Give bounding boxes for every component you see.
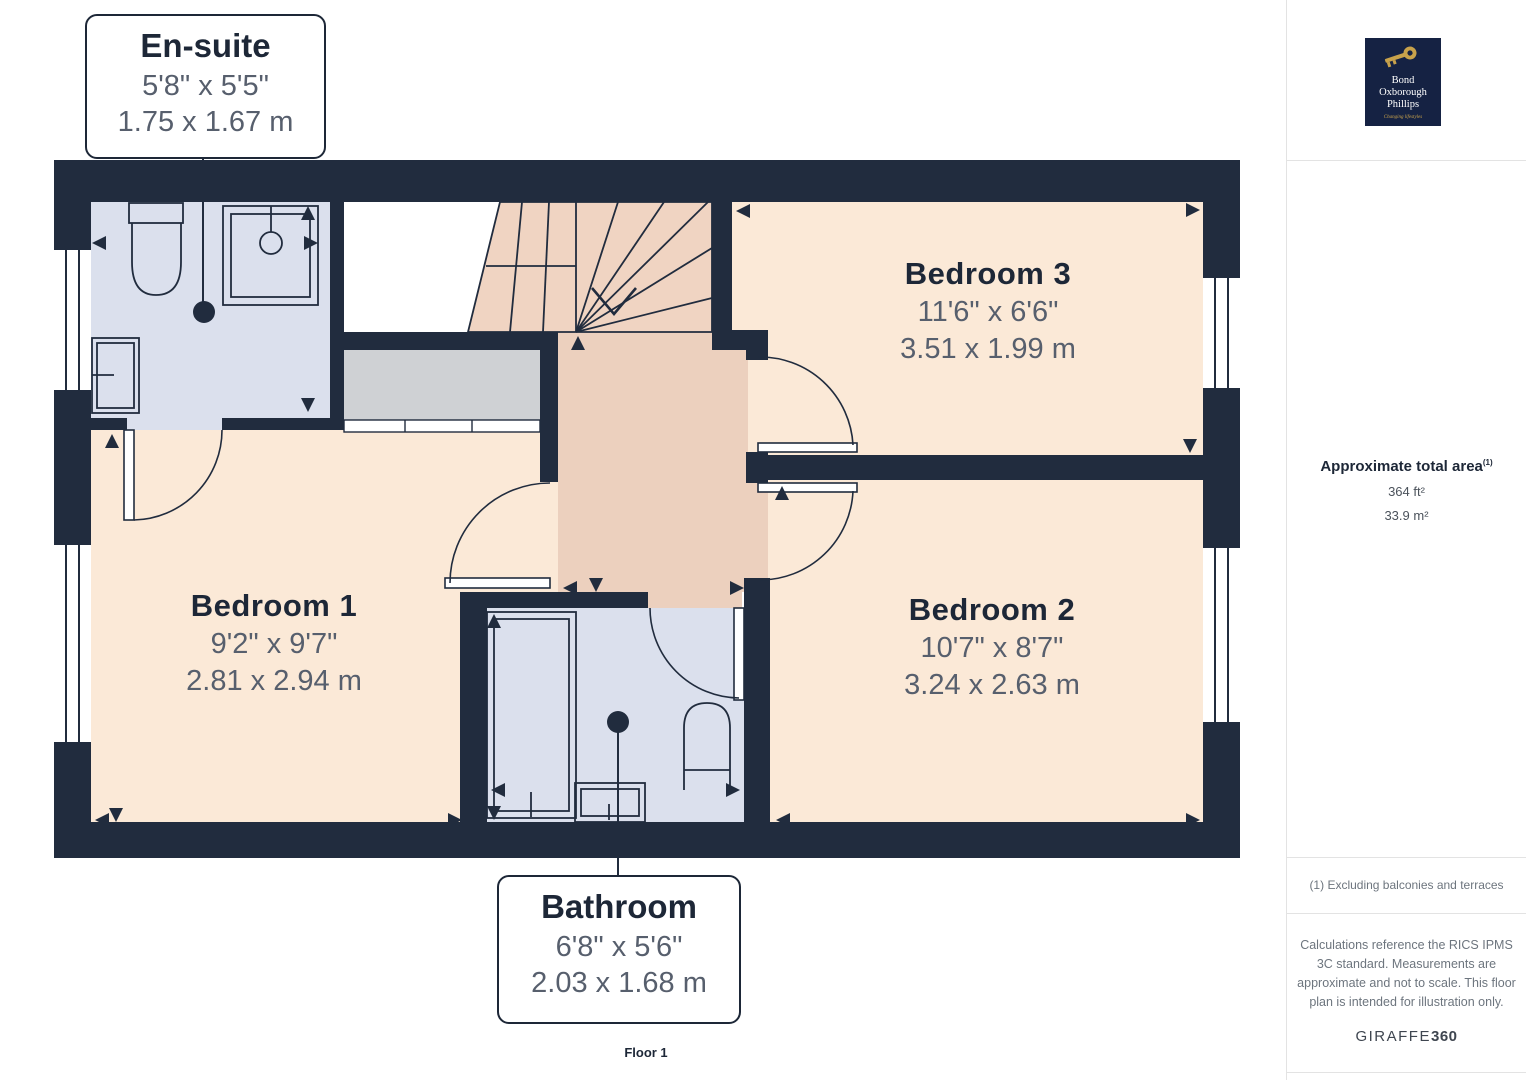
measure-arrow-down [301,398,315,412]
bath-sink-icon [581,789,639,816]
bedroom2-door-swing [760,491,853,580]
shower-head-icon [260,232,282,254]
room-dims-metric: 1.75 x 1.67 m [87,104,324,140]
ensuite-callout: En-suite 5'8" x 5'5" 1.75 x 1.67 m [85,14,326,159]
bedroom2-door-leaf [758,483,857,492]
bathroom-door-leaf [734,608,744,700]
measure-arrow-right [1186,813,1200,827]
toilet-icon [129,203,183,223]
ensuite-door-leaf [124,430,134,520]
bath-toilet-icon [684,703,730,790]
measure-arrow-up [571,336,585,350]
measure-arrow-left [563,581,577,595]
bedroom3-door-swing [758,357,853,445]
measure-arrow-right [1186,203,1200,217]
measure-arrow-up [301,206,315,220]
measure-arrow-up [487,614,501,628]
measure-arrow-left [95,813,109,827]
bedroom3-door-leaf [758,443,857,452]
bathroom-callout: Bathroom 6'8" x 5'6" 2.03 x 1.68 m [497,875,741,1024]
bedroom1-door-leaf [445,578,550,588]
room-dims-metric: 2.03 x 1.68 m [499,965,739,1001]
measure-arrow-down [1183,439,1197,453]
measure-arrow-right [448,813,462,827]
measure-arrow-down [589,578,603,592]
room-dims-imperial: 5'8" x 5'5" [87,68,324,104]
plan-line-overlay [0,0,1526,1080]
room-dims-imperial: 6'8" x 5'6" [499,929,739,965]
camera-point [607,711,629,733]
room-title: Bathroom [499,885,739,929]
measure-arrow-right [730,581,744,595]
bathroom-door-swing [650,608,739,698]
bedroom1-door-swing [450,483,550,583]
toilet-icon [132,223,181,295]
wardrobe-shelf [344,420,540,432]
measure-arrow-right [726,783,740,797]
bath-shower-icon [494,619,569,811]
camera-point [193,301,215,323]
measure-arrow-left [92,236,106,250]
measure-arrow-right [304,236,318,250]
measure-arrow-left [776,813,790,827]
measure-arrow-left [736,204,750,218]
room-title: En-suite [87,24,324,68]
ensuite-door-swing [134,430,222,520]
measure-arrow-down [109,808,123,822]
measure-arrow-up [105,434,119,448]
